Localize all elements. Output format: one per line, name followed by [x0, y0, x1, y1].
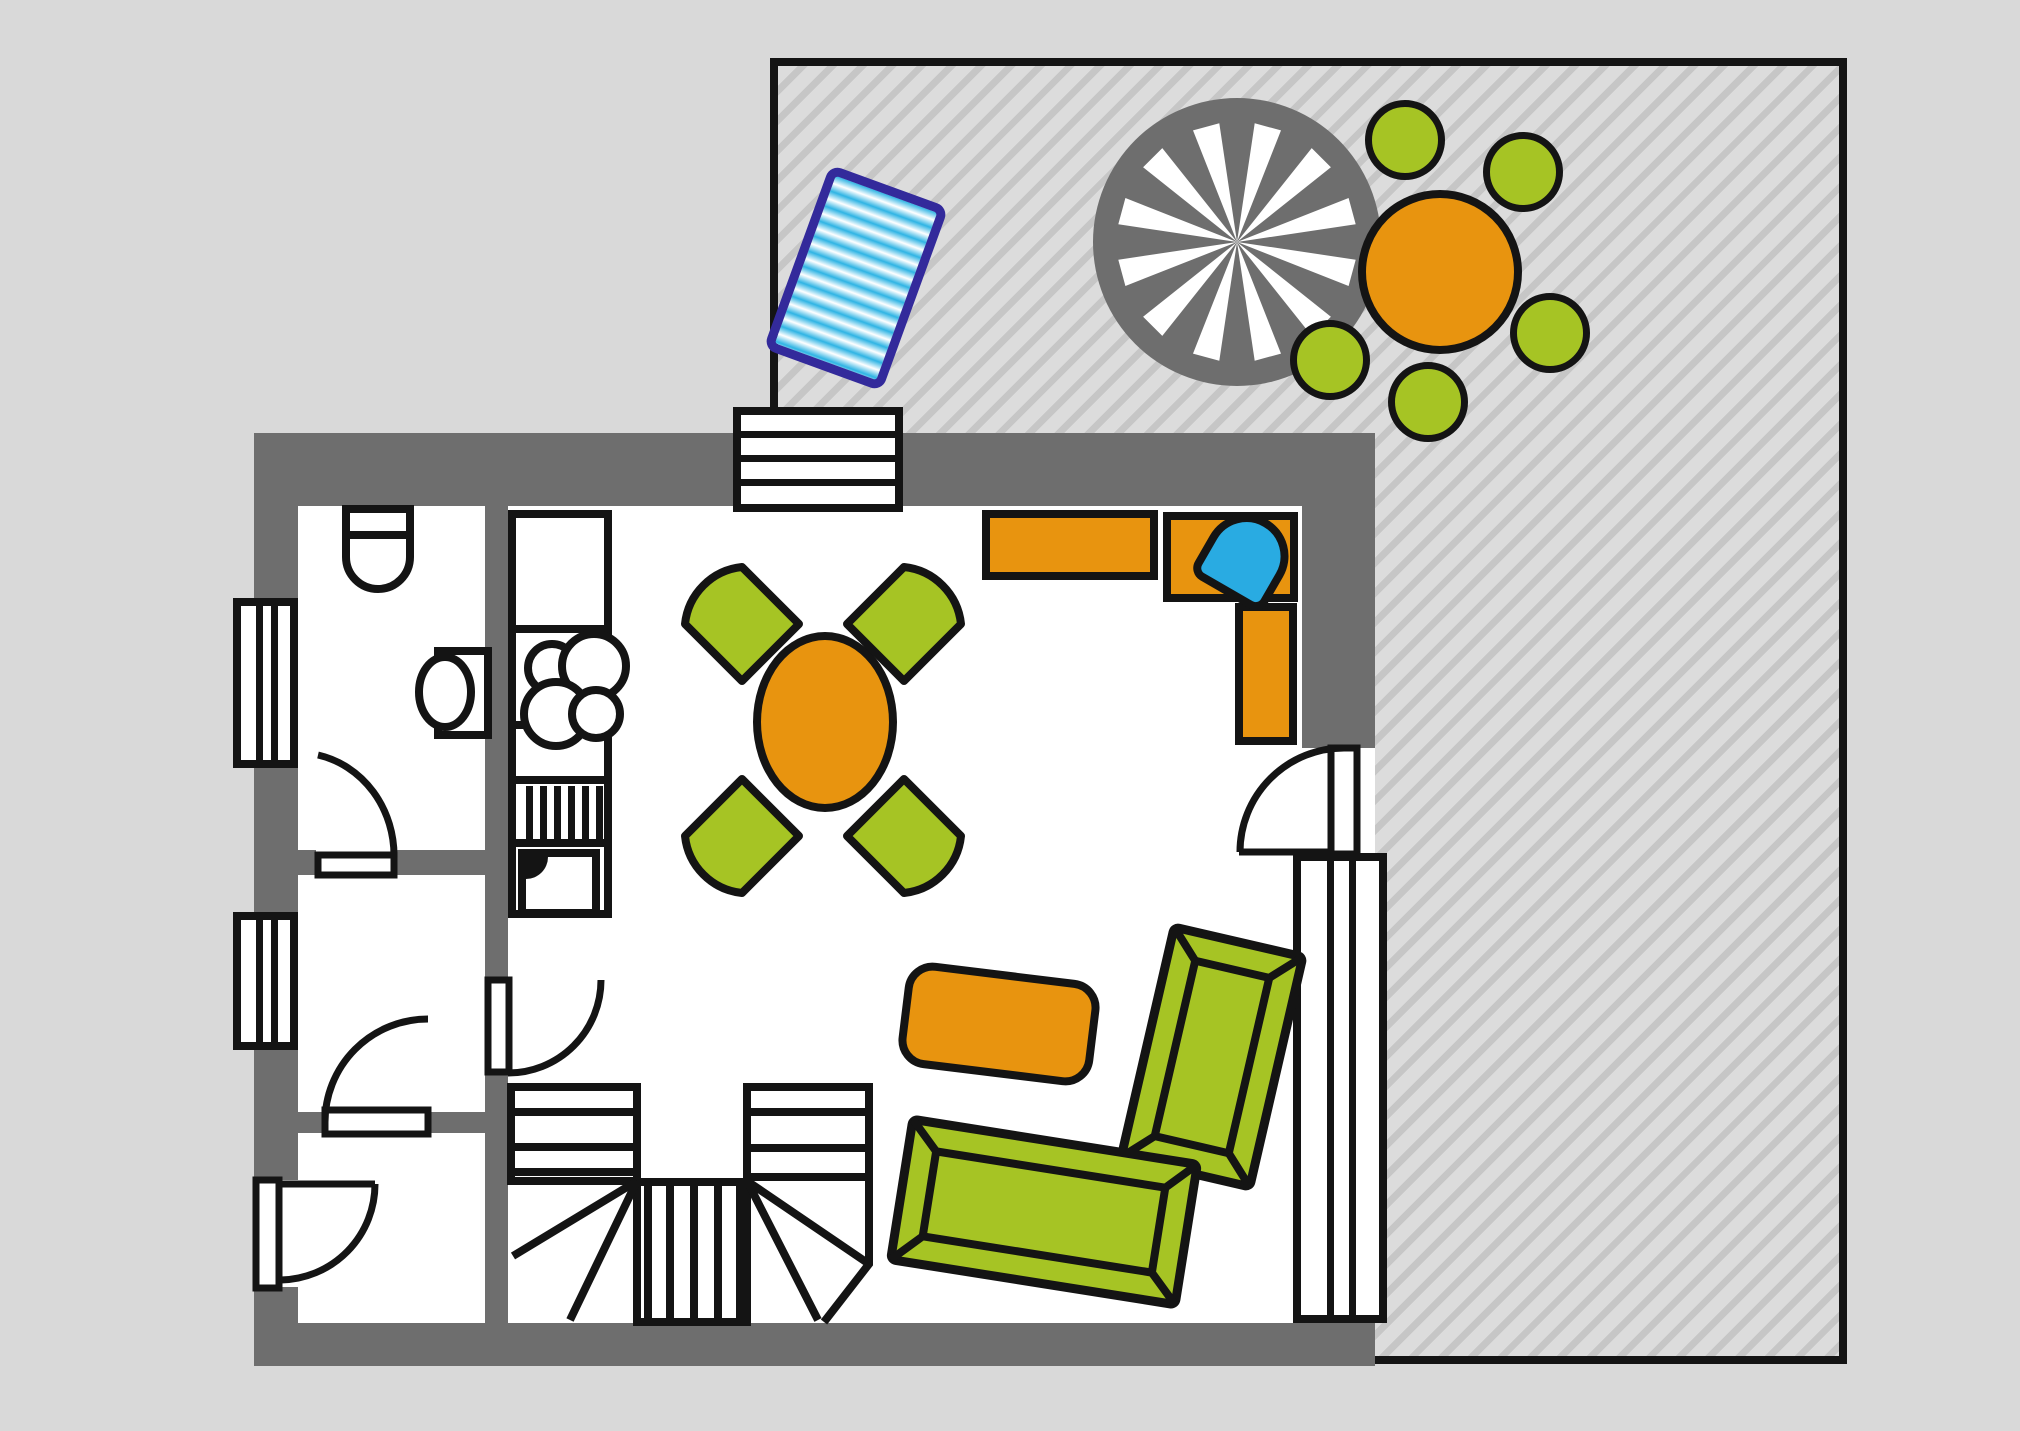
window-mullion: [271, 606, 278, 760]
kitchen-sink: [518, 849, 600, 917]
wall-left: [254, 768, 298, 912]
window-mullion: [741, 431, 895, 438]
terrace-chair: [1388, 362, 1468, 442]
window-left-1: [233, 598, 298, 768]
window-mullion: [1327, 861, 1334, 1315]
wall-left: [254, 506, 298, 598]
counter-divider: [516, 776, 604, 784]
wall-hall: [298, 1112, 322, 1133]
dishwasher-bar: [568, 786, 575, 842]
wall-bathroom: [397, 850, 485, 875]
terrace-chair: [1365, 100, 1445, 180]
window-mullion: [271, 920, 278, 1042]
window-top: [733, 407, 903, 512]
sink-tap: [526, 857, 548, 879]
wall-central: [485, 506, 508, 980]
dishwasher-bar: [596, 786, 603, 842]
dishwasher-bar: [582, 786, 589, 842]
wall-bottom: [254, 1323, 1375, 1366]
window-mullion: [1349, 861, 1356, 1315]
window-right: [1293, 853, 1387, 1323]
dishwasher-bar: [540, 786, 547, 842]
terrace-chair: [1510, 293, 1590, 373]
floor-plan-canvas: [0, 0, 2020, 1431]
wall-left: [254, 1050, 298, 1180]
terrace-table: [1358, 190, 1522, 354]
counter-top: [982, 510, 1158, 580]
kitchen-counter-column: [508, 510, 612, 918]
wall-left: [254, 1287, 298, 1366]
window-mullion: [741, 479, 895, 486]
dishwasher-bar: [526, 786, 533, 842]
window-mullion: [256, 606, 263, 760]
dining-table: [753, 632, 897, 812]
wall-right: [1302, 506, 1375, 748]
terrace-chair: [1290, 320, 1370, 400]
counter-side: [1235, 603, 1297, 745]
window-mullion: [256, 920, 263, 1042]
wall-hall: [430, 1112, 485, 1133]
window-left-2: [233, 912, 298, 1050]
window-mullion: [741, 455, 895, 462]
stove-burner-small: [568, 686, 624, 742]
dishwasher-bar: [554, 786, 561, 842]
wall-bathroom: [298, 850, 316, 875]
wall-central: [485, 1073, 508, 1323]
terrace-chair: [1483, 132, 1563, 212]
